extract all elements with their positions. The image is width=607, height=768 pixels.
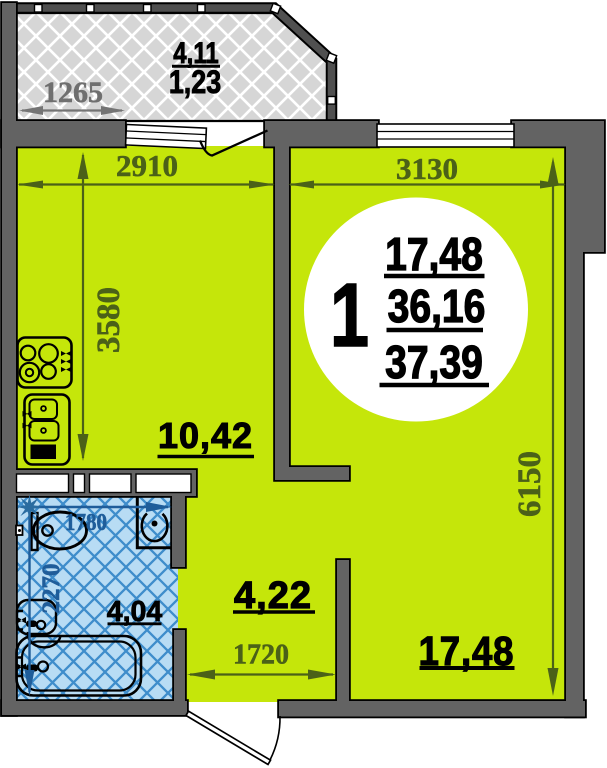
svg-text:2910: 2910: [116, 148, 178, 183]
svg-text:1780: 1780: [65, 509, 107, 536]
svg-text:37,39: 37,39: [385, 337, 483, 389]
svg-text:1720: 1720: [233, 640, 289, 671]
svg-text:17,48: 17,48: [385, 229, 483, 281]
svg-text:6150: 6150: [512, 451, 548, 517]
svg-text:10,42: 10,42: [158, 415, 253, 456]
svg-text:2270: 2270: [38, 564, 65, 614]
svg-text:1265: 1265: [43, 76, 103, 109]
svg-text:36,16: 36,16: [388, 281, 486, 333]
svg-text:1,23: 1,23: [169, 65, 221, 101]
svg-text:1: 1: [330, 266, 369, 366]
svg-text:3130: 3130: [396, 151, 458, 186]
svg-text:3580: 3580: [91, 287, 127, 353]
